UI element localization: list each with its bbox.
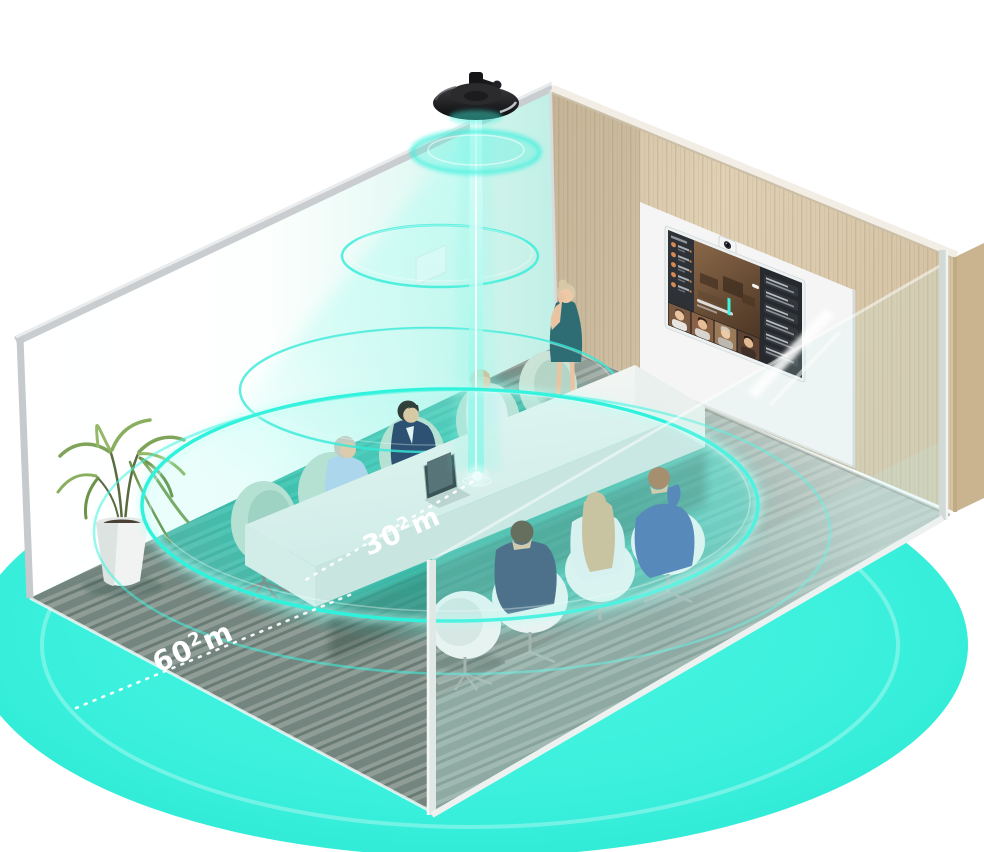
tv-speaking-indicator (728, 298, 731, 316)
wood-wall-end-face (955, 243, 984, 512)
room-scene: 302m 602m (0, 0, 984, 852)
illustration-stage: 302m 602m (0, 0, 984, 852)
tv-participant-sidebar (668, 230, 694, 312)
coverage-ring-1 (412, 131, 540, 173)
